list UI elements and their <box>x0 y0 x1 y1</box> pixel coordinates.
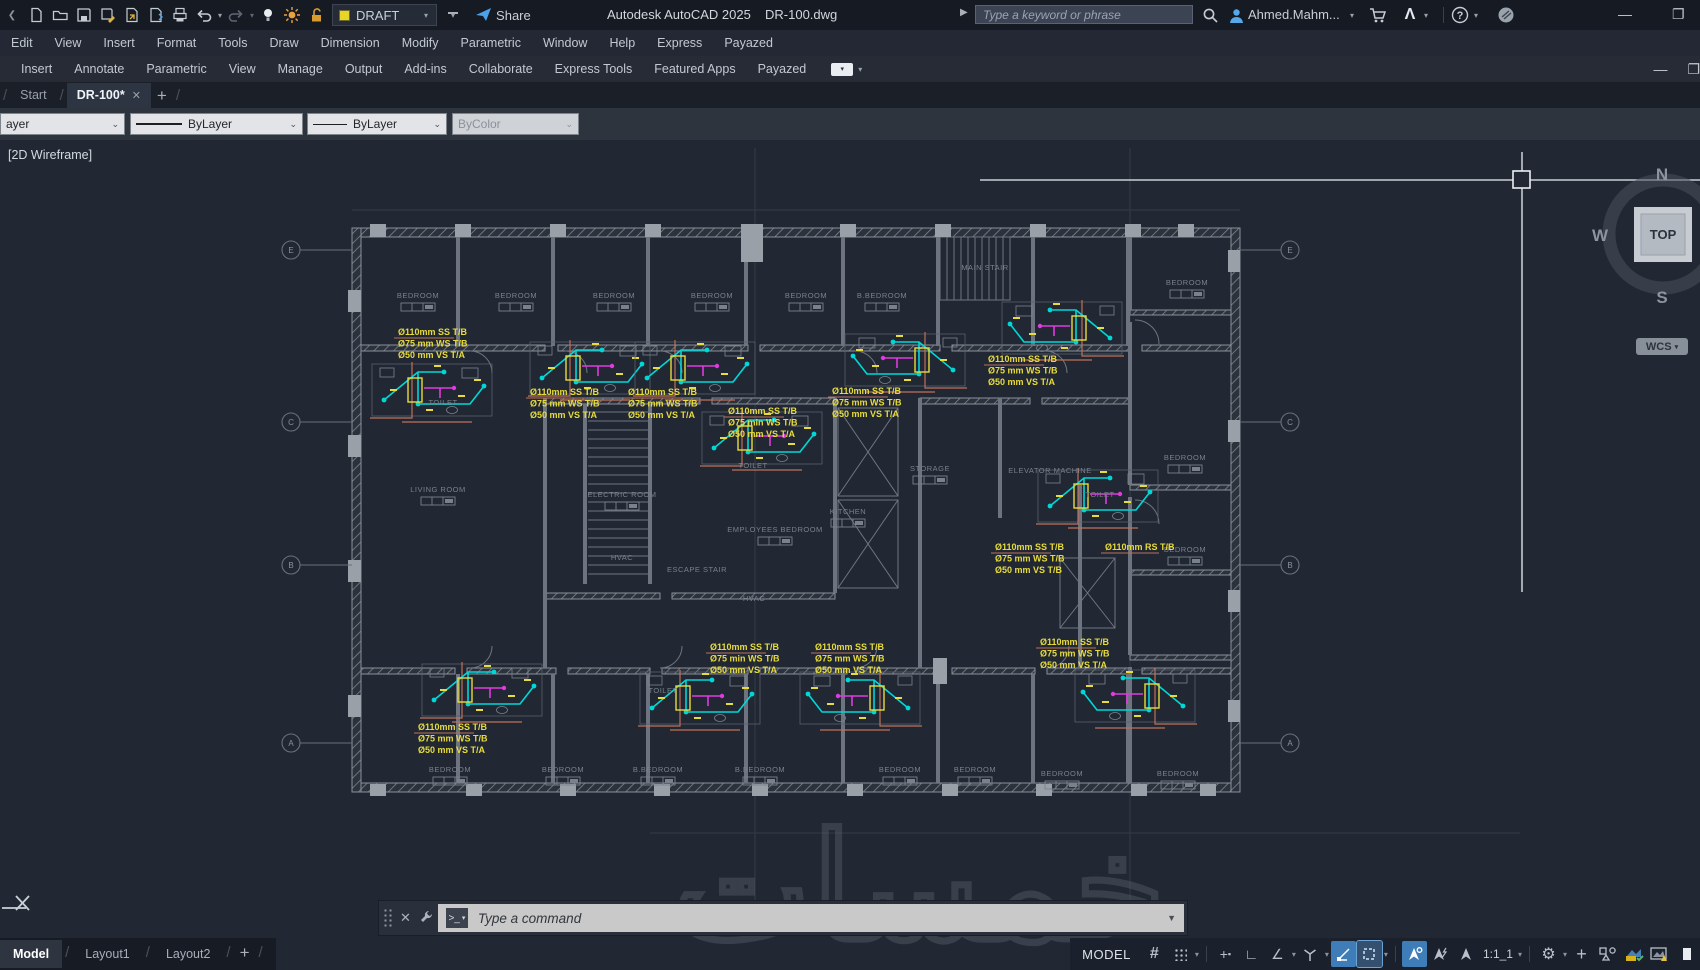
undo-dropdown-icon[interactable]: ▾ <box>218 11 222 20</box>
pipe-annotation: Ø50 mm VS T/A <box>418 745 486 755</box>
visual-style-label[interactable]: [2D Wireframe] <box>8 148 92 162</box>
help-icon[interactable]: ? <box>1449 4 1471 26</box>
room-label: BEDROOM <box>954 765 996 774</box>
viewcube-north[interactable]: N <box>1656 165 1668 184</box>
workspace-label: DRAFT <box>356 8 416 23</box>
lineweight-dropdown[interactable]: ByLayer ⌄ <box>307 113 447 135</box>
grid-bubble: A <box>282 734 352 752</box>
ribbon-tab-payazed[interactable]: Payazed <box>747 57 818 81</box>
save-icon[interactable] <box>73 4 95 26</box>
ribbon-tab-add-ins[interactable]: Add-ins <box>393 57 457 81</box>
room-label: BEDROOM <box>542 765 584 774</box>
titlebar: ❮ ▾ ▾ DRAFT ▾ ▾ Share Autodesk AutoCAD 2… <box>0 0 1700 30</box>
menu-insert[interactable]: Insert <box>92 32 145 54</box>
grid-bubble: C <box>1240 413 1299 431</box>
username-label[interactable]: Ahmed.Mahm... <box>1248 7 1340 22</box>
feedback-icon[interactable] <box>1495 4 1517 26</box>
ribbon-tab-collaborate[interactable]: Collaborate <box>458 57 544 81</box>
room-label: HVAC <box>743 594 765 603</box>
room-label: BEDROOM <box>1041 769 1083 778</box>
annotation-scale-icon[interactable] <box>1454 941 1479 967</box>
save-as-icon[interactable] <box>97 4 119 26</box>
menu-window[interactable]: Window <box>532 32 598 54</box>
pipe-annotation: Ø110mm SS T/B <box>832 386 902 396</box>
ribbon-tab-output[interactable]: Output <box>334 57 394 81</box>
svg-text:E: E <box>288 246 293 255</box>
tab-layout2[interactable]: Layout2 <box>153 940 223 968</box>
command-prompt-icon[interactable]: >_▾ <box>446 908 468 928</box>
viewcube-south[interactable]: S <box>1656 288 1667 307</box>
customize-wrench-icon[interactable] <box>419 909 434 927</box>
separator: / <box>146 944 150 961</box>
room-label: BEDROOM <box>1157 769 1199 778</box>
room-label: BEDROOM <box>785 291 827 300</box>
pipe-annotation: Ø110mm SS T/B <box>988 354 1058 364</box>
open-file-icon[interactable] <box>49 4 71 26</box>
room-label: KITCHEN <box>830 507 866 516</box>
chevron-down-icon: ⌄ <box>289 119 297 130</box>
layer-value: ayer <box>6 117 29 131</box>
annotation-scale-value[interactable]: 1:1_1 <box>1480 947 1516 961</box>
pipe-annotation: Ø110mm SS T/B <box>1040 637 1110 647</box>
redo-icon[interactable] <box>225 4 247 26</box>
workspace-chevron-icon: ▾ <box>424 11 428 20</box>
menu-view[interactable]: View <box>44 32 93 54</box>
grid-bubble: E <box>1240 241 1299 259</box>
menu-parametric[interactable]: Parametric <box>450 32 532 54</box>
pipe-annotation: Ø50 mm VS T/B <box>995 565 1063 575</box>
ribbon-tab-annotate[interactable]: Annotate <box>63 57 135 81</box>
menu-dimension[interactable]: Dimension <box>310 32 391 54</box>
new-drawing-tab-button[interactable]: + <box>157 86 167 106</box>
wcs-label: WCS <box>1646 341 1672 353</box>
plumbing-cluster <box>638 670 760 730</box>
svg-text:A: A <box>1287 739 1293 748</box>
separator: / <box>226 944 230 961</box>
pipe-annotation: Ø75 mm WS T/B <box>628 399 698 409</box>
linetype-dropdown[interactable]: ByLayer ⌄ <box>130 113 303 135</box>
annotation-autoscale-icon[interactable] <box>1428 941 1453 967</box>
pipe-annotation: Ø75 mm WS T/B <box>815 654 885 664</box>
share-label[interactable]: Share <box>496 8 531 23</box>
viewcube-west[interactable]: W <box>1592 226 1609 245</box>
svg-text:C: C <box>288 418 294 427</box>
svg-text:?: ? <box>1457 10 1464 22</box>
room-label: B.BEDROOM <box>735 765 785 774</box>
minimize-button[interactable]: — <box>1618 6 1632 22</box>
ribbon-tab-view[interactable]: View <box>218 57 267 81</box>
pipe-annotation: Ø110mm SS T/B <box>418 722 488 732</box>
room-label: LIVING ROOM <box>410 485 466 494</box>
ribbon-tab-featured-apps[interactable]: Featured Apps <box>643 57 746 81</box>
chevron-down-icon: ▾ <box>1675 343 1679 351</box>
workspace-combo[interactable]: DRAFT ▾ <box>332 4 437 26</box>
pipe-annotation: Ø75 mm WS T/B <box>530 399 600 409</box>
pipe-annotation: Ø50 mm VS T/A <box>988 377 1056 387</box>
menu-help[interactable]: Help <box>598 32 646 54</box>
menubar: EditViewInsertFormatToolsDrawDimensionMo… <box>0 30 1700 56</box>
menu-draw[interactable]: Draw <box>258 32 309 54</box>
pipe-annotation: Ø110mm SS T/B <box>710 642 780 652</box>
pipe-annotation: Ø50 mm VS T/A <box>832 409 900 419</box>
pipe-annotation: Ø110mm SS T/B <box>815 642 885 652</box>
svg-text:E: E <box>1287 246 1292 255</box>
undo-icon[interactable] <box>193 4 215 26</box>
command-input[interactable]: >_▾ Type a command ▼ <box>438 904 1184 932</box>
room-label: BEDROOM <box>1164 453 1206 462</box>
search-icon[interactable] <box>1199 4 1221 26</box>
app-menu-partial-icon[interactable]: ❮ <box>1 4 23 26</box>
command-placeholder: Type a command <box>478 911 581 926</box>
svg-text:B: B <box>288 561 293 570</box>
drawing-canvas[interactable]: [2D Wireframe] <box>0 140 1700 970</box>
viewcube-face-label: TOP <box>1650 227 1677 242</box>
pipe-annotation: Ø50 mm VS T/A <box>1040 660 1108 670</box>
room-label: ELECTRIC ROOM <box>587 490 656 499</box>
chevron-down-icon: ⌄ <box>433 119 441 130</box>
menu-tools[interactable]: Tools <box>207 32 258 54</box>
pipe-annotation: Ø50 mm VS T/A <box>728 429 796 439</box>
plumbing-cluster <box>845 332 967 392</box>
user-avatar-icon[interactable] <box>1225 4 1247 26</box>
isolate-objects-icon[interactable] <box>1595 941 1620 967</box>
room-label: TOILET <box>1085 490 1114 499</box>
pipe-annotation: Ø50 mm VS T/A <box>815 665 883 675</box>
restore-button[interactable]: ❐ <box>1672 6 1685 23</box>
search-input[interactable]: Type a keyword or phrase <box>975 5 1193 24</box>
room-label: BEDROOM <box>429 765 471 774</box>
pipe-annotation: Ø50 mm VS T/A <box>710 665 778 675</box>
linetype-value: ByLayer <box>188 117 232 131</box>
room-label: BEDROOM <box>1166 278 1208 287</box>
menu-modify[interactable]: Modify <box>391 32 450 54</box>
doc-minimize-button[interactable]: — <box>1653 61 1667 77</box>
snap-chevron-icon[interactable]: ▾ <box>1195 950 1199 959</box>
menu-payazed[interactable]: Payazed <box>713 32 784 54</box>
linetype-glyph-icon <box>136 123 182 125</box>
ribbon-tab-parametric[interactable]: Parametric <box>135 57 217 81</box>
room-label: TOILET <box>428 398 457 407</box>
command-history-chevron-icon[interactable]: ▼ <box>1167 913 1176 923</box>
grid-bubble: B <box>282 556 352 574</box>
scale-chevron-icon[interactable]: ▾ <box>1518 950 1522 959</box>
sun-icon[interactable] <box>281 4 303 26</box>
room-label: B.BEDROOM <box>857 291 907 300</box>
document-title: DR-100.dwg <box>765 7 837 22</box>
autodesk-logo-icon[interactable]: Λ <box>1399 4 1421 26</box>
model-space-toggle[interactable]: MODEL <box>1072 947 1141 962</box>
share-icon[interactable] <box>473 4 495 26</box>
menu-format[interactable]: Format <box>146 32 208 54</box>
layout-tab-bar: Model/Layout1/Layout2/+/ <box>0 938 276 970</box>
room-label: TOILET <box>648 686 677 695</box>
grid-icon[interactable]: # <box>1142 941 1167 967</box>
doc-restore-button[interactable]: ❐ <box>1687 61 1700 78</box>
room-label: BEDROOM <box>397 291 439 300</box>
pipe-annotation: Ø75 mm WS T/B <box>418 734 488 744</box>
annotation-visibility-icon[interactable] <box>1402 941 1427 967</box>
room-label: TOILET <box>738 461 767 470</box>
menu-edit[interactable]: Edit <box>0 32 44 54</box>
customization-icon[interactable]: + <box>1569 941 1594 967</box>
user-chevron-icon[interactable]: ▾ <box>1350 11 1354 20</box>
floor-plan-drawing: BEDROOMBEDROOMBEDROOMBEDROOMBEDROOMB.BED… <box>0 140 1700 970</box>
plumbing-cluster <box>1075 668 1197 728</box>
chevron-down-icon: ⌄ <box>111 119 119 130</box>
object-snap-chevron-icon[interactable]: ▾ <box>1384 950 1388 959</box>
layer-dropdown[interactable]: ayer ⌄ <box>0 113 125 135</box>
grid-bubble: C <box>282 413 352 431</box>
help-chevron-icon[interactable]: ▾ <box>1474 11 1478 20</box>
chevron-down-icon: ⌄ <box>565 119 573 130</box>
close-command-icon[interactable]: ✕ <box>400 910 411 926</box>
new-file-icon[interactable] <box>25 4 47 26</box>
polar-tracking-icon[interactable]: ∠ <box>1265 941 1290 967</box>
pipe-annotation: Ø110mm SS T/B <box>530 387 600 397</box>
room-label: MAIN STAIR <box>961 263 1008 272</box>
pipe-annotation: Ø50 mm VS T/A <box>628 410 696 420</box>
image-quality-icon[interactable] <box>1647 941 1672 967</box>
search-placeholder: Type a keyword or phrase <box>983 8 1121 22</box>
command-line-dock[interactable]: ✕ >_▾ Type a command ▼ <box>378 900 1188 936</box>
transmit-icon[interactable] <box>145 4 167 26</box>
pipe-annotation: Ø75 min WS T/B <box>728 418 798 428</box>
room-label: BEDROOM <box>495 291 537 300</box>
pipe-annotation: Ø75 mm WS T/B <box>1040 649 1110 659</box>
new-layout-button[interactable]: + <box>240 943 250 963</box>
qat-overflow-icon[interactable]: ▾ <box>442 4 464 26</box>
color-dropdown[interactable]: ByColor ⌄ <box>452 113 579 135</box>
grid-bubble: A <box>1240 734 1299 752</box>
object-snap-icon[interactable] <box>1357 941 1382 967</box>
wcs-dropdown[interactable]: WCS ▾ <box>1636 338 1688 355</box>
room-label: ELEVATOR MACHINE <box>1008 466 1091 475</box>
pipe-annotation: Ø75 mm WS T/B <box>995 554 1065 564</box>
pipe-annotation: Ø75 mm WS T/B <box>398 339 468 349</box>
tab-layout1[interactable]: Layout1 <box>72 940 142 968</box>
room-label: BEDROOM <box>593 291 635 300</box>
export-icon[interactable] <box>121 4 143 26</box>
pipe-annotation: Ø110mm SS T/B <box>728 406 798 416</box>
lineweight-value: ByLayer <box>353 117 397 131</box>
grid-bubble: E <box>282 241 352 259</box>
svg-text:C: C <box>1287 418 1293 427</box>
autodesk-chevron-icon[interactable]: ▾ <box>1424 11 1428 20</box>
room-label: ESCAPE STAIR <box>667 565 727 574</box>
dock-grip-handle[interactable] <box>383 908 393 928</box>
workspace-gear-icon[interactable]: ⚙ <box>1536 941 1561 967</box>
properties-toolbar: ayer ⌄ ByLayer ⌄ ByLayer ⌄ ByColor ⌄ <box>0 108 1700 140</box>
pipe-annotation: Ø110mm RS T/B <box>1105 542 1175 552</box>
cart-icon[interactable] <box>1367 4 1389 26</box>
color-value: ByColor <box>458 117 501 131</box>
isodraft-icon[interactable] <box>1298 941 1323 967</box>
separator: / <box>65 944 69 961</box>
file-tab-start[interactable]: Start <box>10 83 56 108</box>
pipe-annotation: Ø110mm SS T/B <box>398 327 468 337</box>
menu-express[interactable]: Express <box>646 32 713 54</box>
graphics-performance-icon[interactable] <box>1621 941 1646 967</box>
dynamic-input-icon[interactable]: +▪ <box>1213 941 1238 967</box>
pipe-annotation: Ø50 mm VS T/A <box>530 410 598 420</box>
unlock-icon[interactable] <box>305 4 327 26</box>
lineweight-glyph-icon <box>313 124 347 125</box>
room-label: BEDROOM <box>691 291 733 300</box>
viewcube[interactable]: N W S TOP <box>1588 162 1700 362</box>
pipe-annotation: Ø75 min WS T/B <box>710 654 780 664</box>
ribbon-tab-bar: InsertAnnotateParametricViewManageOutput… <box>0 56 1700 82</box>
bottom-bar: Model/Layout1/Layout2/+/ MODEL # ▾ +▪ ∟ … <box>0 938 1700 970</box>
room-label: BEDROOM <box>879 765 921 774</box>
ortho-icon[interactable]: ∟ <box>1239 941 1264 967</box>
room-label: STORAGE <box>910 464 950 473</box>
room-label: B.BEDROOM <box>633 765 683 774</box>
pipe-annotation: Ø110mm SS T/B <box>995 542 1065 552</box>
ribbon-display-toggle[interactable]: ▾ ▾ <box>831 63 864 76</box>
ribbon-tab-insert[interactable]: Insert <box>10 57 63 81</box>
gear-chevron-icon[interactable]: ▾ <box>1563 950 1567 959</box>
svg-text:B: B <box>1287 561 1292 570</box>
polar-chevron-icon[interactable]: ▾ <box>1292 950 1296 959</box>
ucs-icon <box>2 896 29 910</box>
svg-text:A: A <box>288 739 294 748</box>
room-label: EMPLOYEES BEDROOM <box>727 525 823 534</box>
collapse-arrow-icon[interactable]: ▶ <box>960 7 968 18</box>
plumbing-cluster <box>370 362 492 422</box>
lightbulb-icon[interactable] <box>257 4 279 26</box>
file-tab-bar: / Start/DR-100*✕ + / <box>0 82 1700 108</box>
model-tab[interactable]: Model <box>0 940 62 968</box>
file-tab-dr100[interactable]: DR-100*✕ <box>67 83 151 108</box>
ribbon-tab-manage[interactable]: Manage <box>267 57 334 81</box>
pipe-annotation: Ø50 mm VS T/A <box>398 350 466 360</box>
print-icon[interactable] <box>169 4 191 26</box>
clean-screen-icon[interactable] <box>1673 941 1698 967</box>
snap-icon[interactable] <box>1168 941 1193 967</box>
pipe-annotation: Ø110mm SS T/B <box>628 387 698 397</box>
close-tab-icon[interactable]: ✕ <box>132 89 141 102</box>
status-bar: MODEL # ▾ +▪ ∟ ∠ ▾ ▾ ▾ 1:1_1 ▾ ⚙ ▾ + <box>1070 938 1700 970</box>
osnap-tracking-icon[interactable] <box>1331 941 1356 967</box>
redo-dropdown-icon[interactable]: ▾ <box>250 11 254 20</box>
separator: / <box>259 944 263 961</box>
ribbon-tab-express-tools[interactable]: Express Tools <box>544 57 644 81</box>
room-label: HVAC <box>611 553 633 562</box>
plumbing-cluster <box>800 670 922 730</box>
color-swatch-icon <box>339 10 350 21</box>
pipe-annotation: Ø75 mm WS T/B <box>832 398 902 408</box>
pipe-annotation: Ø75 mm WS T/B <box>988 366 1058 376</box>
grid-bubble: B <box>1240 556 1299 574</box>
app-title: Autodesk AutoCAD 2025 <box>607 7 751 22</box>
isodraft-chevron-icon[interactable]: ▾ <box>1325 950 1329 959</box>
